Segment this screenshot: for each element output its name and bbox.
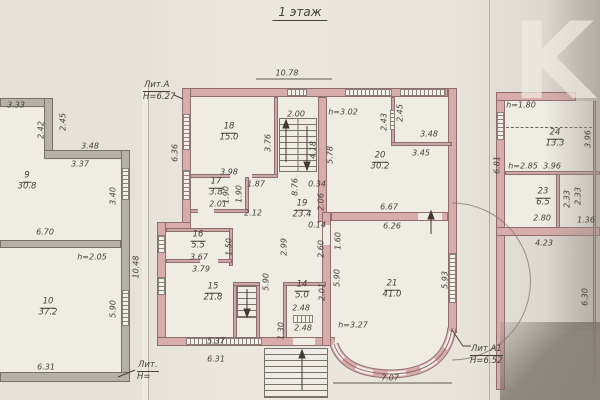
window [122,168,129,200]
ceiling-height-note-h205: h=2.05 [77,253,107,262]
window [183,114,190,150]
window [183,170,190,200]
dim-label-c_348: 3.48 [420,130,438,139]
room-area: 3.8 [209,189,224,199]
dim-label-c_260: 2.60 [317,240,326,258]
dim-label-c_398: 3.98 [220,168,238,177]
staircase-porch [264,348,328,398]
window [158,235,165,253]
dim-label-c_626: 6.26 [383,222,401,231]
room-label-r10: 1037.2 [39,298,58,319]
ceiling-height-note-h302: h=3.02 [328,108,358,117]
dim-label-c_034: 0.34 [308,180,326,189]
dim-label-c_376: 3.76 [264,134,273,152]
dim-label-c_014: 0.14 [308,221,326,230]
dim-label-c_367: 3.67 [190,253,208,262]
room-label-r20: 2030.2 [371,152,390,173]
dim-label-c_667: 6.67 [380,203,398,212]
dim-label-c_636: 6.36 [171,144,180,162]
dim-label-c_593: 5.93 [441,271,450,289]
dim-label-l_337: 3.37 [71,160,89,169]
dim-label-c_707: 7.07 [381,374,399,383]
room-area: 41.0 [383,291,402,301]
wall-interior [233,282,260,286]
room-label-r23: 236.5 [536,188,551,209]
room-label-r17: 173.8 [209,178,224,199]
dim-label-c_190b: 1.90 [235,185,244,203]
dim-label-c_418: 4.18 [309,141,318,159]
room-area: 21.8 [204,294,223,304]
window [122,290,129,326]
room-label-r9: 930.8 [18,172,37,193]
dim-label-r_233b: 2.33 [574,187,583,205]
door-opening [418,213,442,220]
dim-label-c_243: 2.43 [380,113,389,131]
dim-label-c_245: 2.45 [396,104,405,122]
dim-label-l_631: 6.31 [37,363,55,372]
room-label-r15: 1521.8 [204,283,223,304]
dim-label-r_681: 6.81 [493,156,502,174]
wall-interior [256,282,260,338]
dim-label-c_187: 1.87 [247,180,265,189]
room-area: 15.0 [220,134,239,144]
dim-label-r_396b: 3.96 [543,162,561,171]
dim-label-c_876: 8.76 [291,178,300,196]
dim-label-l_245: 2.45 [59,113,68,131]
dim-label-r_280: 2.80 [533,214,551,223]
window [449,253,456,303]
dim-label-c_537: 5.37 [207,337,225,346]
dim-label-l_1048: 10.48 [132,256,141,279]
room-label-r16: 165.5 [191,231,206,252]
room-label-r21: 2141.0 [383,280,402,301]
dim-label-c_631: 6.31 [207,355,225,364]
dim-label-r_136: 1.36 [577,216,595,225]
wall-interior [0,240,121,248]
dim-label-l_340: 3.40 [109,187,118,205]
dim-label-c_206: 2.06 [317,193,326,211]
ceiling-height-note-h180: h=1.80 [506,101,536,110]
wall [0,372,130,382]
room-label-r14: 145.0 [295,281,310,302]
label-lit-a: Лит.А H=6.27 [143,80,175,102]
window [497,112,504,140]
dim-label-r_396a: 3.96 [584,130,593,148]
door-opening [198,209,214,213]
lit-a1-height: H=6.52 [470,356,503,367]
dim-label-c_578: 5.78 [326,146,335,164]
door-hatch [390,110,395,130]
floor-plan-photo: K 1 этаж Лит.А H=6.27 Лит А1 H=6.52 Лит.… [0,0,600,400]
ceiling-height-note-h285: h=2.85 [508,162,538,171]
staircase-small [237,286,257,318]
dim-label-c_130: 1.30 [277,322,286,340]
lit-left-name: Лит. [137,360,159,372]
room-label-r19: 1923.4 [293,200,312,221]
room-area: 6.5 [536,199,551,209]
room-label-r18: 1815.0 [220,123,239,144]
room-area: 30.2 [371,163,390,173]
wall-interior [391,142,452,146]
room-label-r24: 2413.3 [546,129,565,150]
room-area: 37.2 [39,309,58,319]
page-title: 1 этаж [272,5,327,21]
ceiling-height-note-h327: h=3.27 [338,321,368,330]
window [345,89,392,96]
label-lit-a1: Лит А1 H=6.52 [470,344,503,366]
dim-label-c_248b: 2.48 [294,324,312,333]
sheet-edge [148,85,149,400]
dim-label-c_212: 2.12 [244,209,262,218]
photo-shadow-corner [500,322,600,400]
room-area: 5.0 [295,292,310,302]
dim-label-l_590: 5.90 [109,300,118,318]
wall [44,150,130,159]
wall-interior [233,282,237,338]
dim-label-c_299: 2.99 [280,238,289,256]
dim-label-c_345: 3.45 [412,149,430,158]
dim-label-c_379: 3.79 [192,265,210,274]
lit-a1-name: Лит А1 [470,344,503,356]
dim-label-c_stairw: 2.00 [287,110,305,119]
room-area: 13.3 [546,140,565,150]
dim-label-c_top: 10.78 [276,69,299,78]
dim-label-c_590a: 5.90 [262,273,271,291]
dim-label-l_242: 2.42 [37,121,46,139]
lit-a-name: Лит.А [143,80,170,92]
window [400,89,446,96]
window [158,277,165,295]
sheet-edge [489,0,490,400]
dim-label-l_333: 3.33 [7,101,25,110]
dim-label-c_590b: 5.90 [333,269,342,287]
dim-label-r_630: 6.30 [581,288,590,306]
dim-label-r_423: 4.23 [535,239,553,248]
label-lit-left: Лит. H= [137,360,159,382]
dim-label-r_233a: 2.33 [563,190,572,208]
wall-interior [274,97,278,177]
room-area: 5.5 [191,242,206,252]
lit-left-height: H= [137,372,159,383]
room-area: 23.4 [293,211,312,221]
window [293,315,313,323]
dim-label-c_201a: 2.01 [209,200,227,209]
dim-label-l_670: 6.70 [36,228,54,237]
window [287,89,307,96]
lit-a-height: H=6.27 [143,92,175,103]
dim-label-c_160: 1.60 [334,232,343,250]
door-opening [293,338,315,345]
dim-label-l_348: 3.48 [81,142,99,151]
dim-label-c_248a: 2.48 [292,304,310,313]
dim-label-c_150: 1.50 [225,238,234,256]
room-area: 30.8 [18,183,37,193]
dim-label-c_201b: 2.01 [318,283,327,301]
